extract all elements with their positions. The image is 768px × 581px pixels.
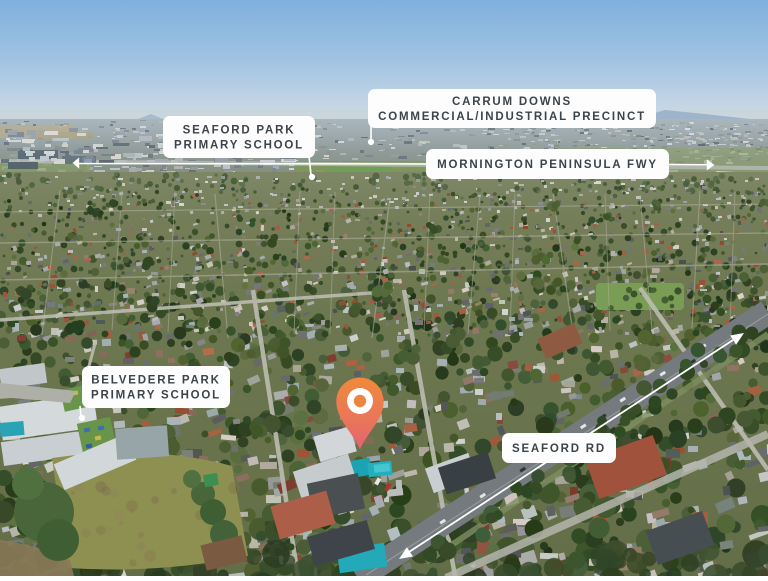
svg-text:COMMERCIAL/INDUSTRIAL PRECINCT: COMMERCIAL/INDUSTRIAL PRECINCT (378, 111, 646, 123)
svg-text:CARRUM DOWNS: CARRUM DOWNS (452, 96, 572, 108)
svg-text:SEAFORD RD: SEAFORD RD (512, 443, 606, 455)
svg-text:PRIMARY SCHOOL: PRIMARY SCHOOL (91, 390, 221, 402)
svg-text:PRIMARY SCHOOL: PRIMARY SCHOOL (174, 140, 304, 152)
svg-text:BELVEDERE PARK: BELVEDERE PARK (91, 375, 221, 387)
svg-text:MORNINGTON PENINSULA FWY: MORNINGTON PENINSULA FWY (437, 159, 658, 171)
svg-text:SEAFORD PARK: SEAFORD PARK (183, 125, 296, 137)
